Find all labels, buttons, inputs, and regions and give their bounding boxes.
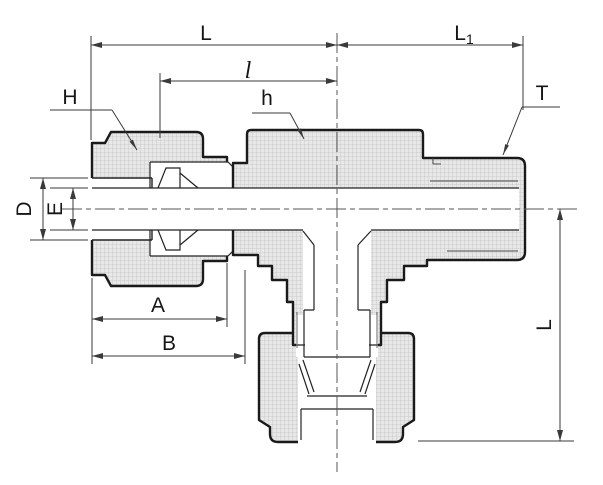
- leader-label-h: h: [261, 87, 273, 110]
- dim-label-l: l: [245, 58, 252, 84]
- dim-label-D: D: [13, 201, 36, 216]
- dim-label-A: A: [151, 294, 165, 317]
- dim-label-B: B: [162, 332, 176, 355]
- dim-label-L-right: L: [533, 319, 556, 331]
- leader-label-T: T: [536, 82, 549, 105]
- dim-label-E: E: [44, 202, 67, 216]
- dim-label-L-run: L: [200, 22, 212, 45]
- leader-label-H: H: [62, 86, 77, 109]
- fitting-section-drawing: L l L1 H h T D E A B L: [0, 0, 603, 485]
- fitting-drawing-page: L l L1 H h T D E A B L: [0, 0, 603, 485]
